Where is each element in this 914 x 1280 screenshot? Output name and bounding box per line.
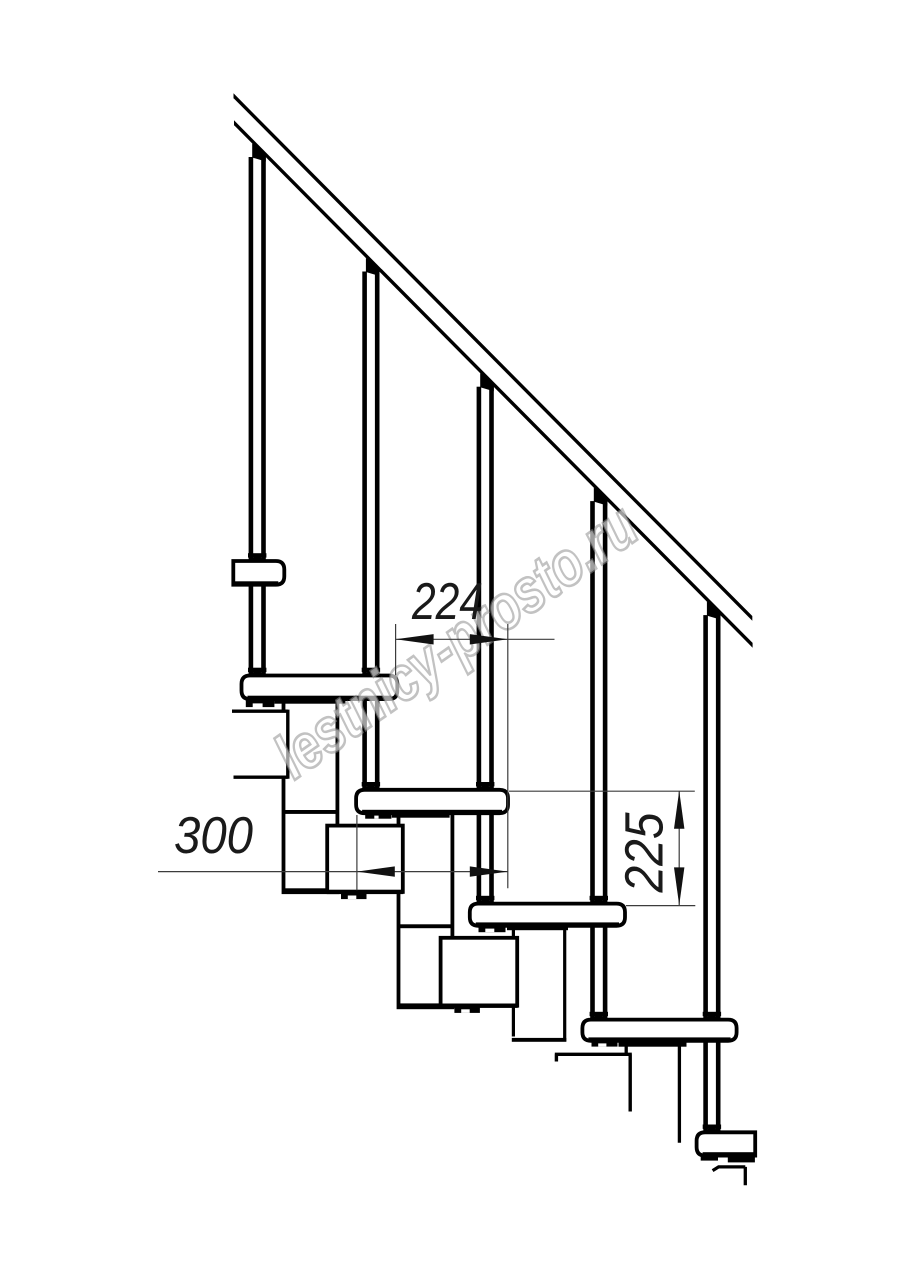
svg-text:300: 300	[174, 807, 253, 865]
svg-text:224: 224	[411, 573, 483, 631]
svg-text:225: 225	[615, 812, 675, 894]
